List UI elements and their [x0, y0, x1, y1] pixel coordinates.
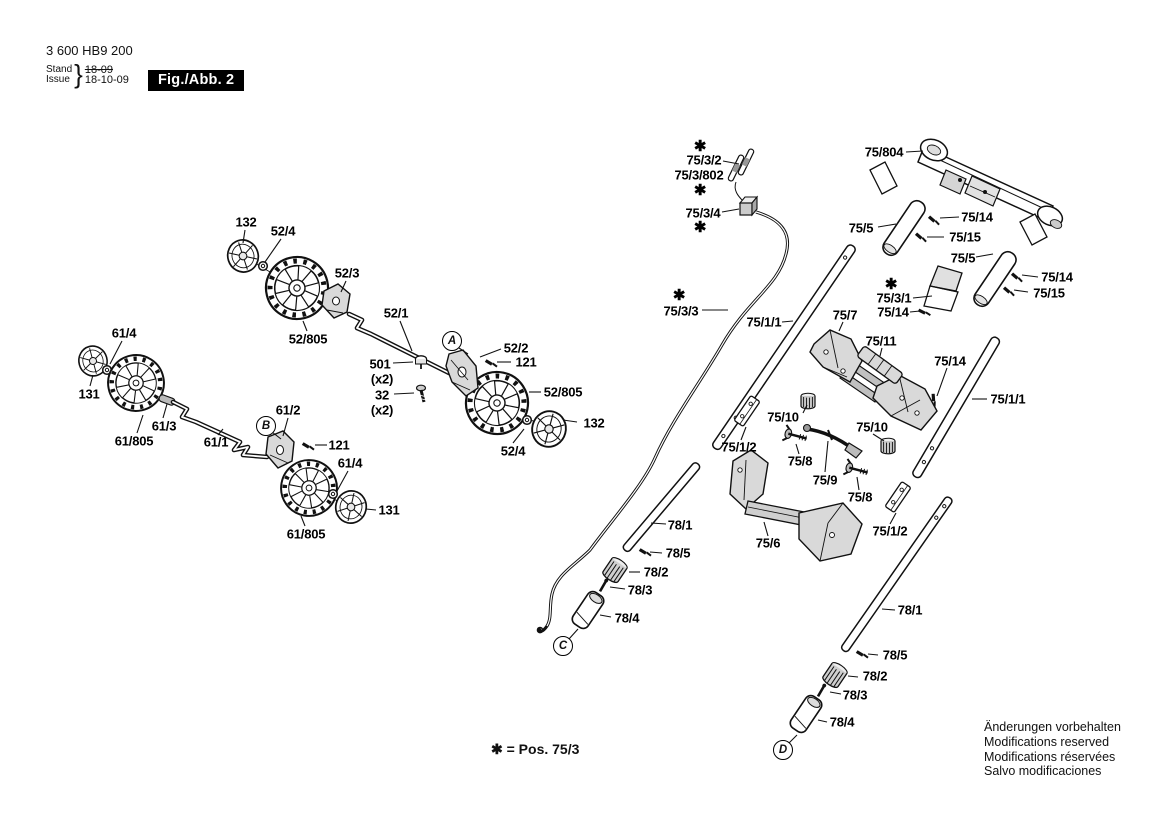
disclaimer-line-fr: Modifications réservées	[984, 750, 1121, 765]
wheel-assembly-center	[416, 350, 570, 451]
sleeve-78-4-right	[788, 693, 824, 735]
screw-75-14-a	[927, 215, 941, 225]
nut-75-10-left	[801, 393, 815, 409]
axle-61-1	[173, 402, 267, 457]
screw-75-15-b	[1002, 286, 1016, 296]
screw-75-15-a	[914, 232, 928, 242]
axle-52-1	[349, 314, 449, 373]
figure-number-badge: Fig./Abb. 2	[148, 70, 244, 91]
pin-78-3-left	[598, 578, 608, 592]
console-75-7	[810, 330, 937, 430]
pin-78-3-right	[816, 683, 826, 697]
cable-75-3-3	[537, 212, 787, 633]
grip-75-5-right	[971, 249, 1019, 309]
tube-78-1-left	[622, 461, 701, 552]
screw-32	[417, 385, 427, 402]
disclaimer-line-en: Modifications reserved	[984, 735, 1121, 750]
sleeve-78-4-left	[570, 589, 606, 631]
screw-75-14-c	[917, 308, 931, 315]
grip-75-5-left	[880, 198, 928, 258]
plate-75-1-2-right	[885, 482, 911, 513]
wheel-assembly-upper-left	[224, 236, 449, 373]
bracket-61-2	[266, 431, 294, 468]
issue-value: 18-10-09	[85, 75, 129, 85]
issue-labels: Stand Issue	[46, 65, 72, 85]
brace-glyph: }	[74, 63, 83, 85]
connector-75-3-4	[740, 197, 757, 215]
issue-label: Issue	[46, 75, 72, 85]
issue-values: 18-09 18-10-09	[85, 65, 129, 85]
wedge-75-3-1	[924, 266, 962, 311]
issue-block: Stand Issue } 18-09 18-10-09	[46, 65, 129, 85]
bracket-52-2	[446, 350, 478, 396]
modifications-disclaimer: Änderungen vorbehalten Modifications res…	[984, 720, 1121, 779]
console-75-6	[730, 450, 862, 561]
disclaimer-line-de: Änderungen vorbehalten	[984, 720, 1121, 735]
parts-diagram-page: 13252/452/352/80552/161/413161/80561/361…	[0, 0, 1169, 826]
disclaimer-line-es: Salvo modificaciones	[984, 764, 1121, 779]
screw-501	[416, 356, 427, 369]
bar-75-11	[857, 346, 903, 385]
screw-121-b	[301, 442, 315, 450]
exploded-parts-drawing	[0, 0, 1169, 826]
screw-78-5-right	[855, 650, 869, 658]
document-number: 3 600 HB9 200	[46, 43, 133, 58]
screw-75-14-b	[1010, 272, 1024, 282]
screw-121-a	[484, 359, 498, 367]
wheel-assembly-middle-left	[76, 343, 267, 457]
lever-75-9	[804, 425, 863, 459]
footnote-star-legend: ✱ = Pos. 75/3	[491, 741, 579, 758]
